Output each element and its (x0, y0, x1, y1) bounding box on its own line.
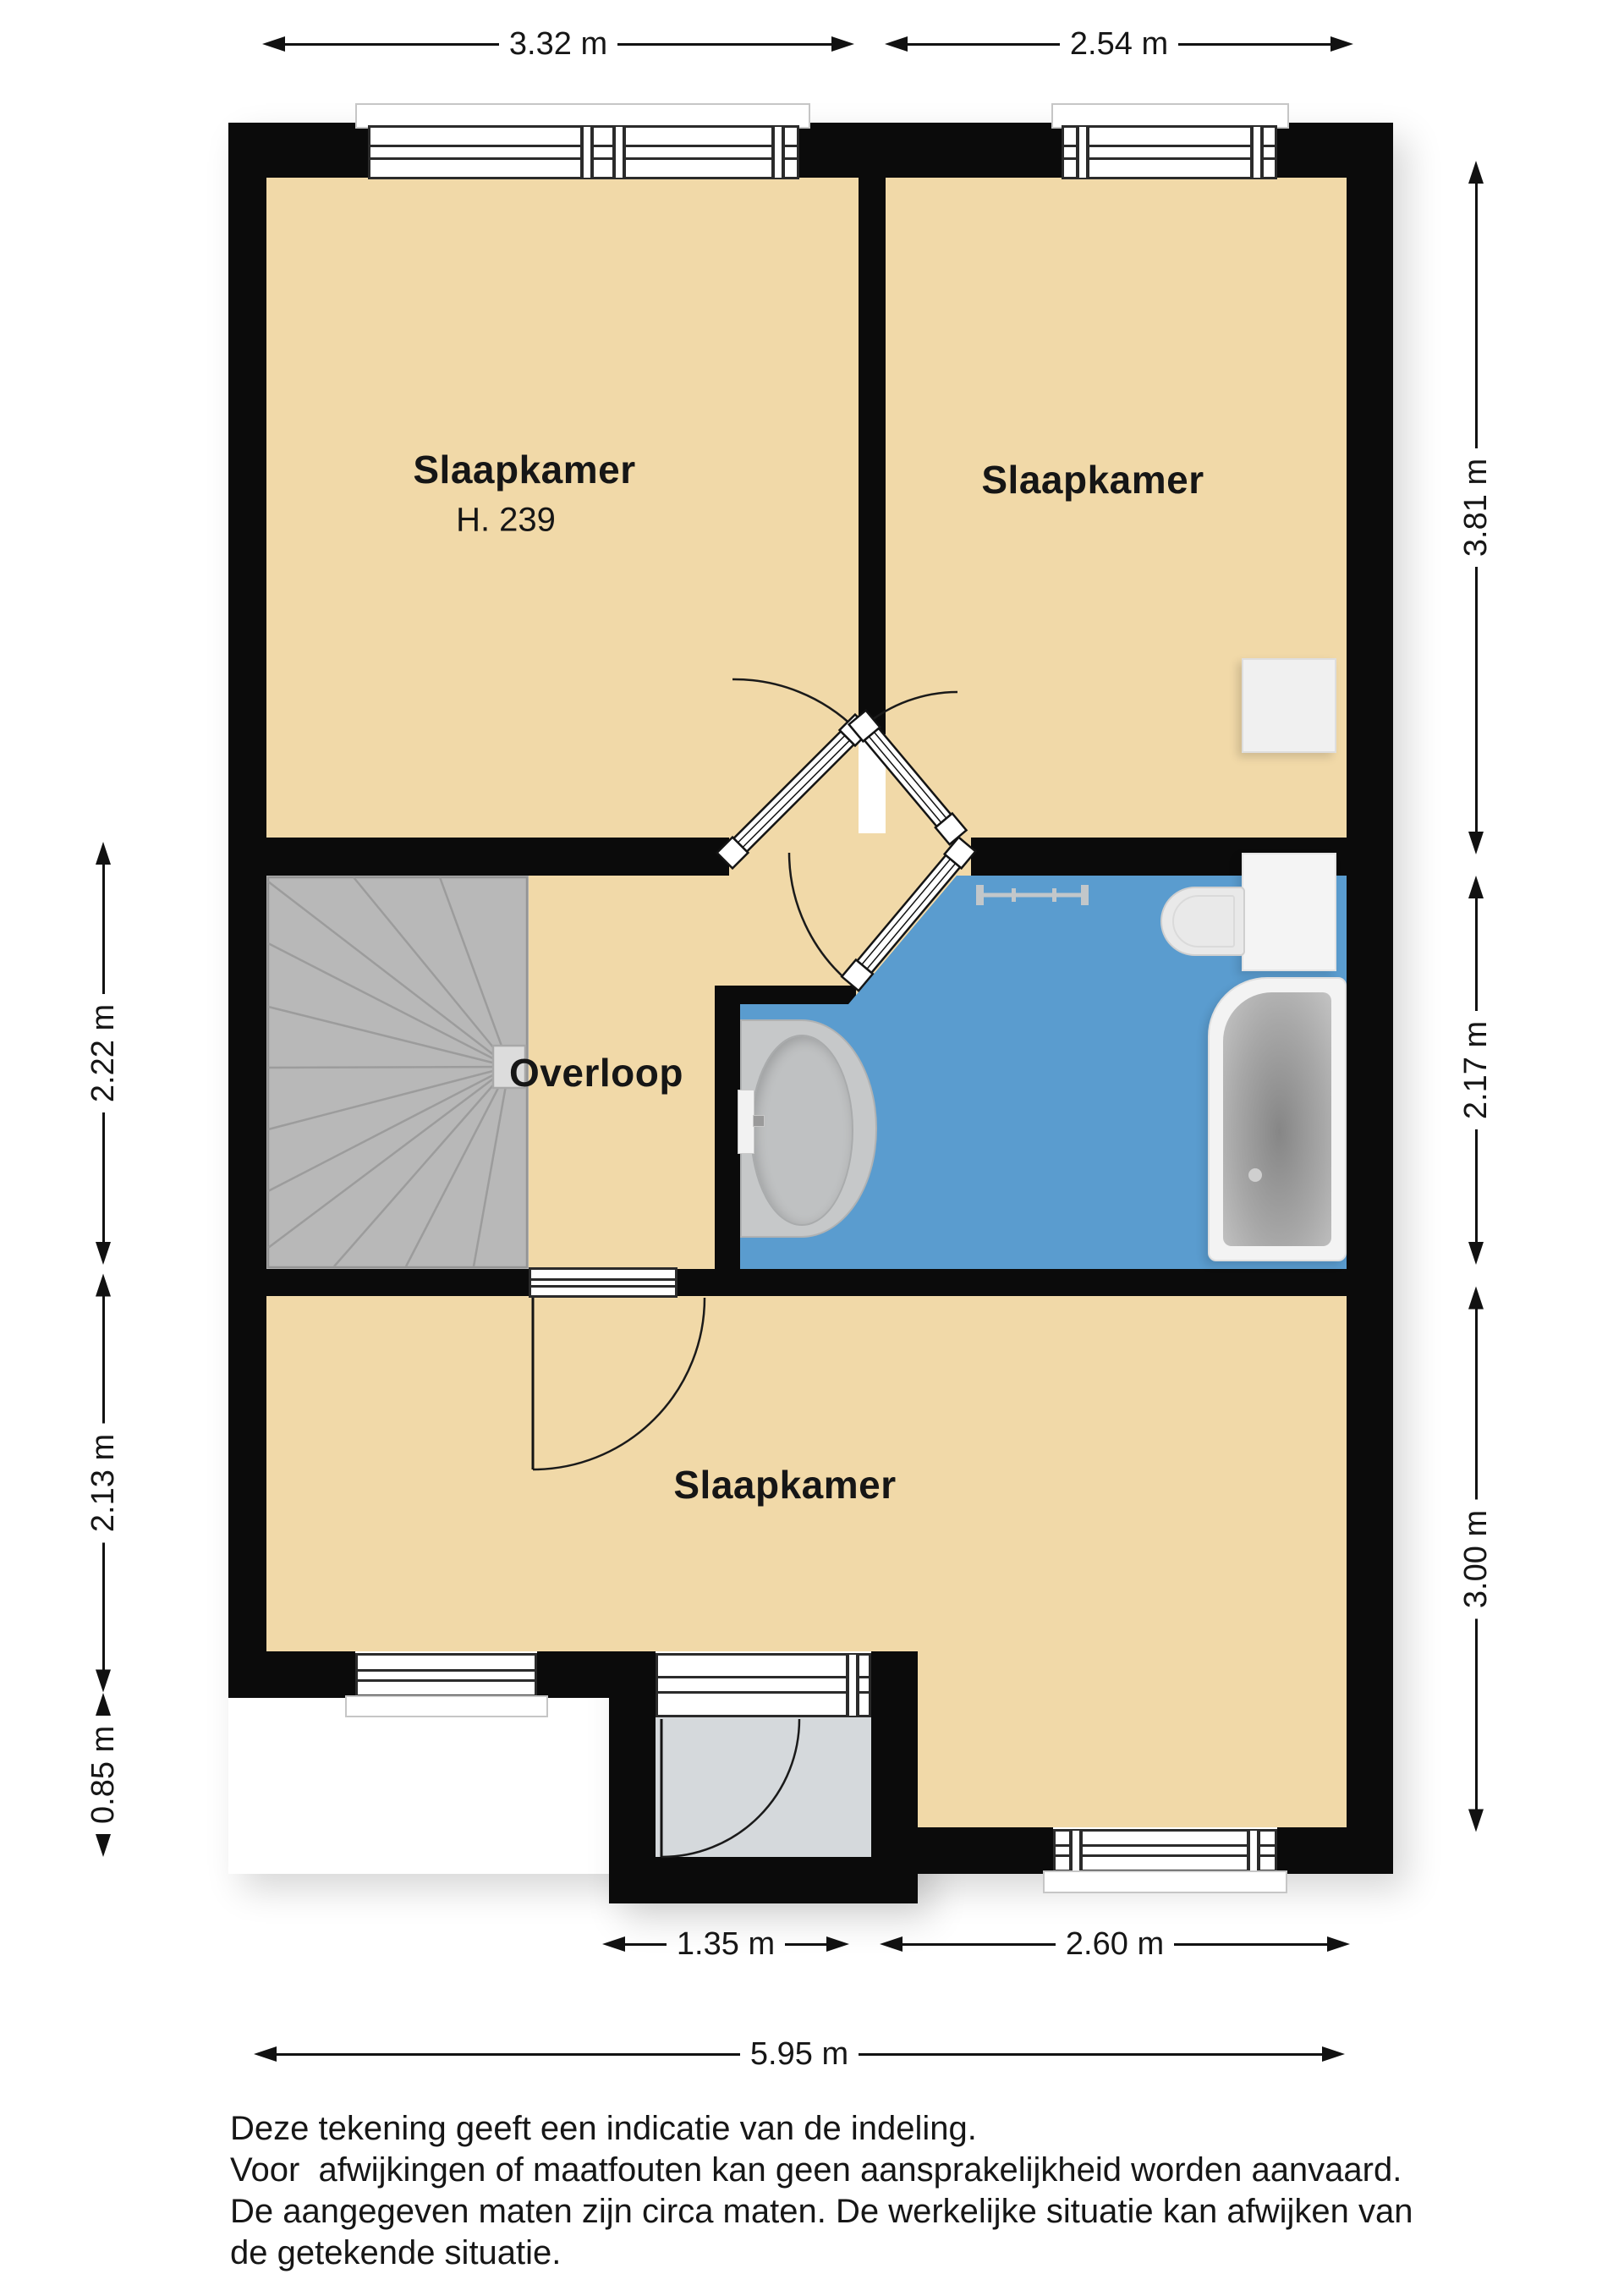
dim-right-3: 3.00 m (1460, 1287, 1492, 1832)
toilet-icon (1160, 887, 1245, 956)
toilet-cistern (1242, 853, 1336, 971)
door-icon-bedroom-top-left (717, 715, 871, 869)
winder-staircase-icon (268, 877, 527, 1267)
disclaimer-text: Deze tekening geeft een indicatie van de… (230, 2108, 1413, 2274)
disclaimer-line: Voor afwijkingen of maatfouten kan geen … (230, 2150, 1413, 2191)
dim-bottom-2: 2.60 m (880, 1928, 1350, 1960)
bathtub-icon (1208, 977, 1347, 1261)
disclaimer-line: Deze tekening geeft een indicatie van de… (230, 2108, 1413, 2150)
room-label-bedroom-top-right: Slaapkamer (981, 457, 1204, 503)
dim-left-2: 2.13 m (87, 1274, 119, 1693)
faucet-handle (753, 1115, 765, 1127)
faucet-icon (738, 1090, 754, 1154)
room-label-landing: Overloop (509, 1050, 683, 1096)
dim-right-1: 3.81 m (1460, 161, 1492, 854)
room-height-note: H. 239 (456, 502, 556, 540)
dim-top-2: 2.54 m (885, 28, 1353, 60)
disclaimer-line: de getekende situatie. (230, 2233, 1413, 2274)
dim-left-3: 0.85 m (87, 1696, 119, 1857)
dim-bottom-total: 5.95 m (254, 2038, 1345, 2070)
dim-left-1: 2.22 m (87, 842, 119, 1265)
room-label-bedroom-top-left: Slaapkamer (413, 447, 635, 492)
closet-icon (1242, 658, 1336, 753)
dim-bottom-1: 1.35 m (602, 1928, 849, 1960)
door-icon-bedroom-top-right (849, 711, 967, 844)
dim-top-1: 3.32 m (262, 28, 854, 60)
floor-plan-page: { "document": { "type": "floor-plan", "f… (0, 0, 1624, 2296)
disclaimer-line: De aangegeven maten zijn circa maten. De… (230, 2191, 1413, 2233)
dim-right-2: 2.17 m (1460, 876, 1492, 1265)
room-label-bedroom-bottom: Slaapkamer (673, 1462, 896, 1508)
